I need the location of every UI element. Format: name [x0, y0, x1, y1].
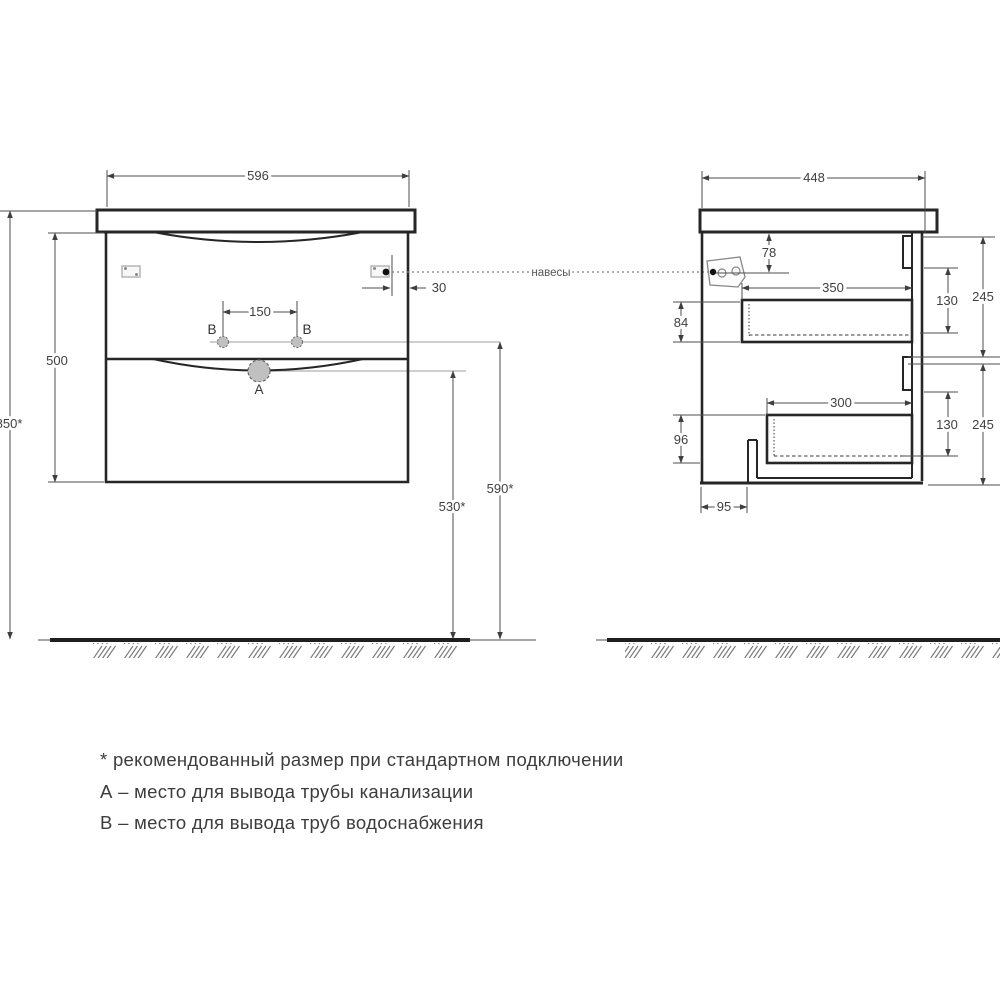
note-asterisk: * рекомендованный размер при стандартном…: [100, 749, 624, 770]
dim-cabinet-height: 500: [46, 353, 68, 368]
label-point-b-right: B: [302, 322, 311, 337]
supply-hole-right: [292, 337, 303, 348]
front-view: 596 500 850* 150 B B A 30 530* 590*: [0, 168, 513, 639]
dim-drawer1-depth: 350: [822, 280, 844, 295]
label-hangers: навесы: [531, 267, 570, 279]
front-cabinet-outline: [106, 232, 408, 482]
dim-clearance-bottom: 96: [674, 432, 688, 447]
dim-drawer2-depth: 300: [830, 395, 852, 410]
dim-depth: 448: [803, 170, 825, 185]
notes: * рекомендованный размер при стандартном…: [100, 749, 624, 833]
hangers-connector: навесы: [392, 267, 712, 279]
dim-drain-height: 530*: [439, 499, 466, 514]
floor: [38, 640, 1000, 658]
note-point-a: А – место для вывода трубы канализации: [100, 781, 473, 802]
floor-hatching-front: [88, 643, 464, 658]
dim-hanger-drop: 78: [762, 245, 776, 260]
hanger-point: [383, 269, 390, 276]
left-hanger-icon: [122, 266, 140, 277]
supply-hole-left: [218, 337, 229, 348]
mid-rail-bracket: [903, 357, 912, 390]
technical-drawing: 596 500 850* 150 B B A 30 530* 590*: [0, 0, 1000, 1000]
dim-inner-height-top: 130: [936, 293, 958, 308]
top-rail-bracket: [903, 236, 912, 268]
side-countertop: [700, 210, 937, 232]
dim-hanger-offset: 30: [432, 280, 446, 295]
dim-supply-height: 590*: [487, 481, 514, 496]
label-point-b-left: B: [207, 322, 216, 337]
front-countertop: [97, 210, 415, 232]
floor-hatching-side: [625, 643, 1000, 658]
wall-hanger-plate: [707, 257, 745, 287]
side-view: 448 78 350 300 84 96 130 245: [673, 170, 1000, 514]
drawer-1-box: [742, 300, 912, 342]
dim-hole-spacing: 150: [249, 304, 271, 319]
dim-clearance-top: 84: [674, 315, 688, 330]
label-point-a: A: [254, 382, 263, 397]
note-point-b: В – место для вывода труб водоснабжения: [100, 812, 484, 833]
right-hanger-icon: [371, 266, 389, 277]
bottom-bracket: [748, 440, 757, 483]
dim-width: 596: [247, 168, 269, 183]
dim-section-height-bottom: 245: [972, 417, 994, 432]
dim-section-height-top: 245: [972, 289, 994, 304]
dim-plinth-inset: 95: [717, 499, 731, 514]
hanger-point: [710, 269, 716, 275]
drain-hole: [248, 360, 270, 382]
dim-mount-height: 850*: [0, 416, 22, 431]
dim-inner-height-bottom: 130: [936, 417, 958, 432]
